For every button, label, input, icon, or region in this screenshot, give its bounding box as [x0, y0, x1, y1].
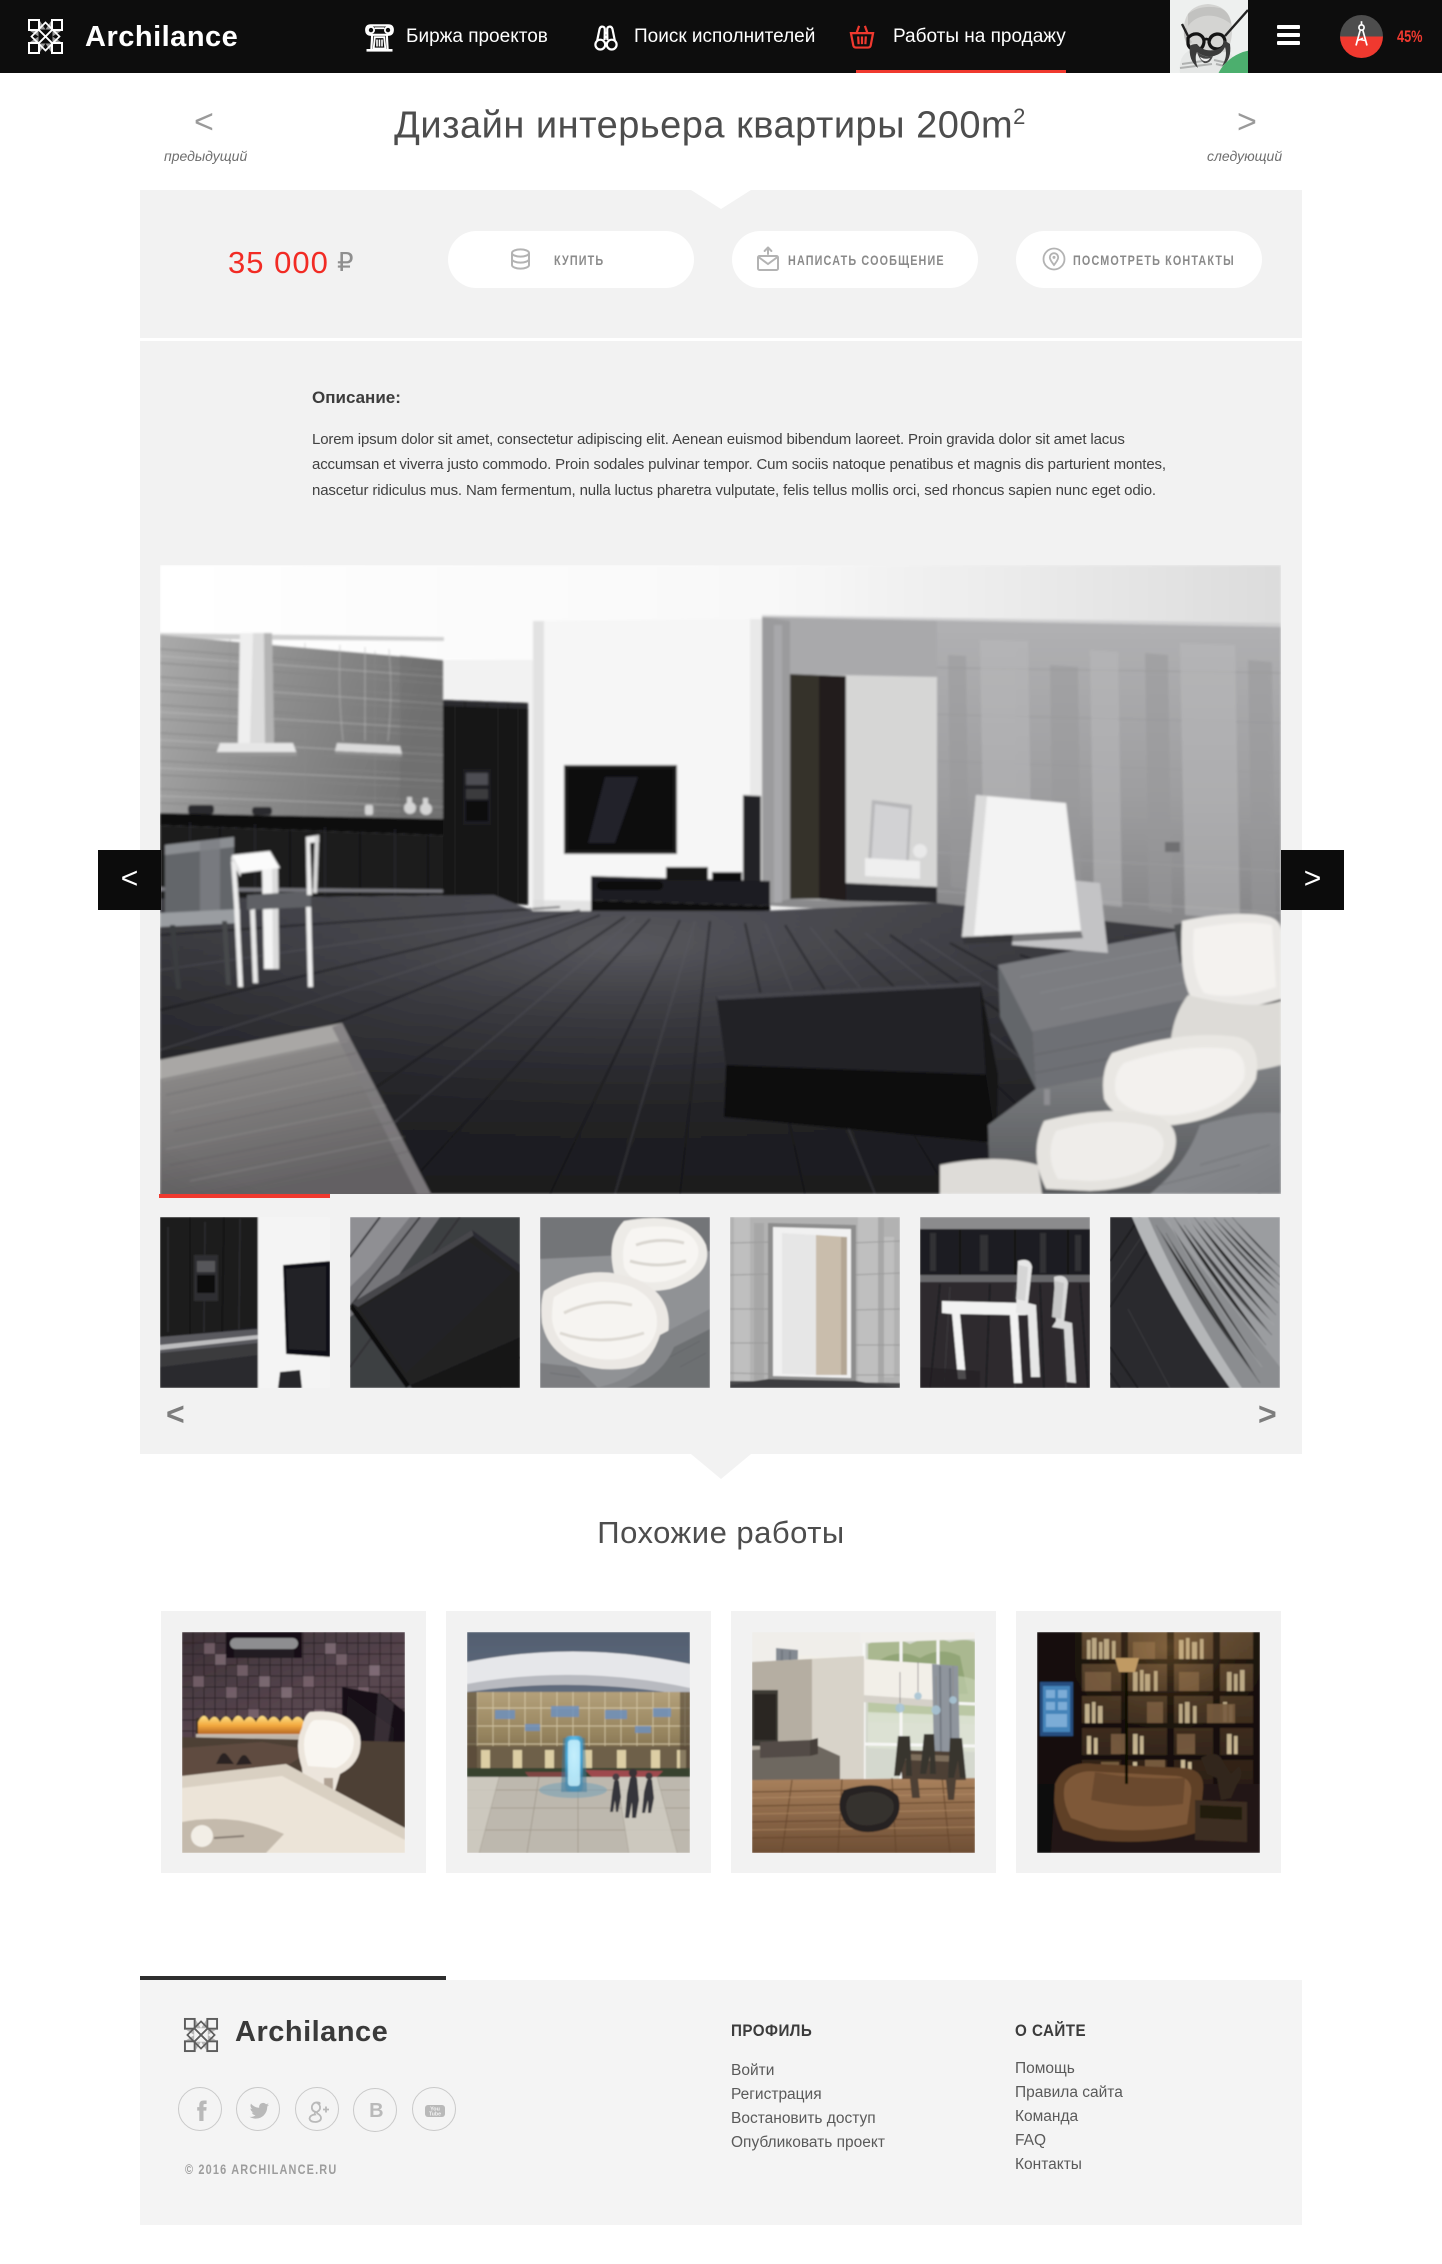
svg-text:Tube: Tube: [429, 2112, 441, 2118]
